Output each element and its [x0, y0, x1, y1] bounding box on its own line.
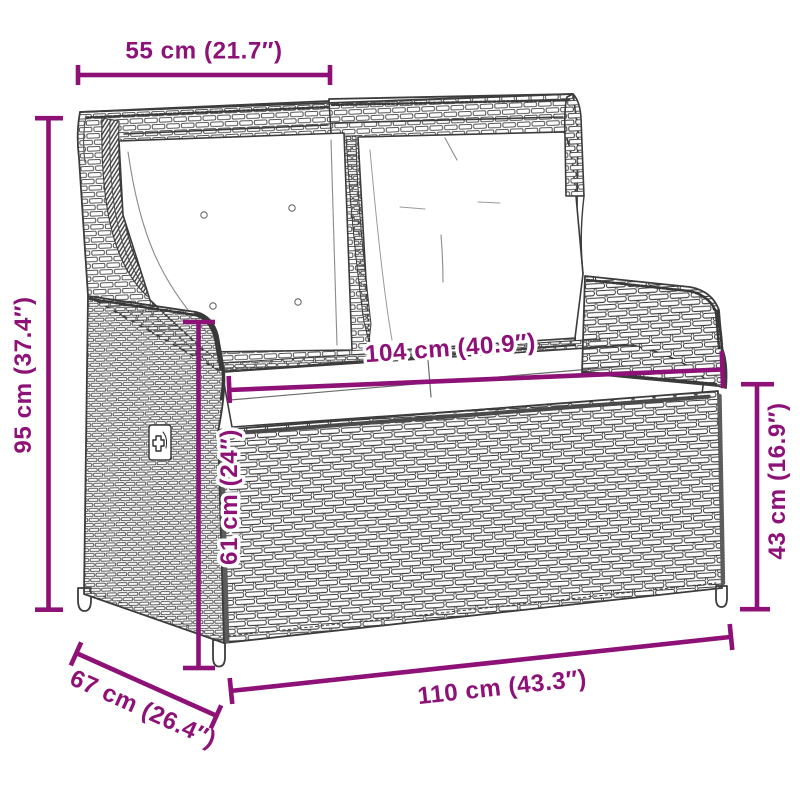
svg-text:61 cm (24″): 61 cm (24″) — [216, 429, 243, 565]
svg-text:43 cm (16.9″): 43 cm (16.9″) — [764, 402, 791, 559]
svg-text:95 cm (37.4″): 95 cm (37.4″) — [10, 296, 37, 453]
svg-text:55 cm (21.7″): 55 cm (21.7″) — [125, 38, 282, 65]
